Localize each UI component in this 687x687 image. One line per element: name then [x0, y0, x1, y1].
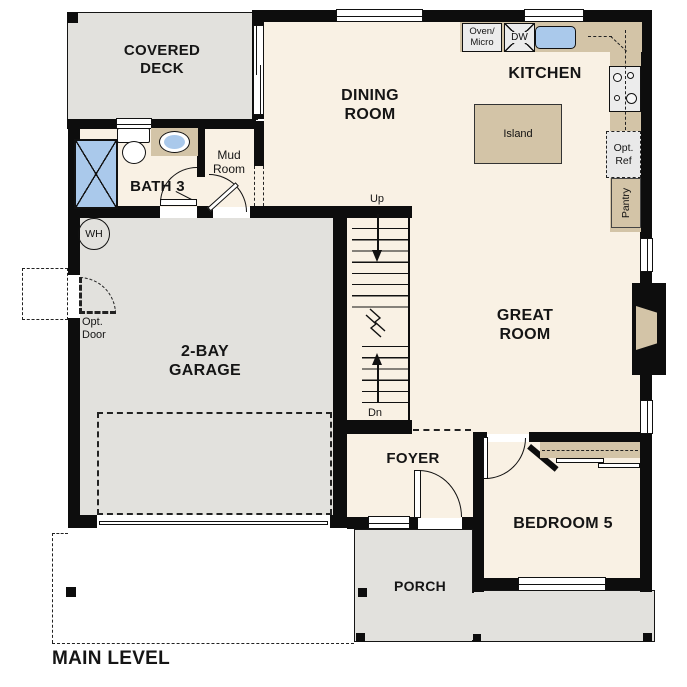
covered-deck-label: COVERED DECK: [92, 42, 232, 78]
wall-front-c: [462, 517, 473, 529]
mud-room-label: Mud Room: [200, 148, 258, 177]
closet-bypass-door: [556, 458, 604, 463]
driveway-dashed-left: [52, 533, 53, 643]
deck-sliding-door: [253, 25, 264, 115]
pantry-cabinet: Pantry: [611, 178, 641, 228]
garage-label: 2-BAY GARAGE: [145, 342, 265, 380]
water-heater-label: WH: [85, 228, 103, 240]
bath3-label: BATH 3: [110, 178, 205, 196]
dining-room-label: DINING ROOM: [315, 86, 425, 124]
upper-cabinet-dashed-line: [625, 30, 626, 130]
kitchen-label: KITCHEN: [490, 64, 600, 83]
cooktop-burner: [627, 72, 634, 79]
wall-garage-bottom-b: [330, 515, 347, 528]
porch-post: [643, 633, 652, 642]
shower: [74, 139, 118, 209]
stairs-lower-flight: [362, 336, 408, 406]
porch-area-side: [473, 590, 655, 642]
great-room-window-lower: [640, 400, 653, 434]
driveway-post: [66, 587, 76, 597]
stairs-upper-flight: [352, 218, 408, 314]
wall-garage-bottom-a: [68, 515, 97, 528]
stairs-up-arrow-shaft: [377, 214, 379, 250]
wall-bedroom-top-b: [529, 432, 645, 442]
stair-right-rail: [408, 212, 410, 420]
garage-door-panel: [99, 521, 328, 525]
pantry-label: Pantry: [620, 188, 632, 218]
wall-stairs-bottom: [340, 420, 412, 434]
cooktop-burner: [613, 73, 622, 82]
cooktop-burner: [626, 93, 637, 104]
water-heater: WH: [78, 218, 110, 250]
stairs-up-label: Up: [362, 193, 392, 206]
stairs-break-zigzag: [364, 308, 392, 338]
porch-seam-patch: [470, 593, 476, 640]
closet-bypass-door: [598, 463, 640, 468]
opt-ref: Opt. Ref: [606, 131, 641, 178]
bedroom5-label: BEDROOM 5: [493, 514, 633, 533]
stairs-dn-label: Dn: [360, 407, 390, 420]
porch-post: [356, 633, 365, 642]
wall-top: [252, 10, 652, 22]
porch-post: [358, 588, 367, 597]
wall-long-c: [250, 206, 412, 218]
driveway-dashed-top: [52, 533, 68, 534]
wall-right-4: [640, 434, 652, 592]
opt-door-label: Opt. Door: [82, 316, 124, 342]
kitchen-window: [524, 9, 584, 22]
opt-ref-label: Opt. Ref: [614, 142, 634, 166]
toilet-bowl: [122, 141, 146, 164]
plan-title: MAIN LEVEL: [52, 648, 232, 671]
foyer-label: FOYER: [375, 450, 451, 468]
foyer-sidelight-window: [368, 516, 410, 529]
dishwasher-label: DW: [510, 32, 529, 43]
wall-bedroom-bottom-b: [606, 578, 652, 590]
wall-left-lower: [68, 318, 80, 528]
fireplace-firebox: [636, 306, 657, 350]
great-room-window-upper: [640, 238, 653, 272]
dishwasher: DW: [504, 23, 535, 52]
driveway-dashed-bottom: [52, 643, 354, 644]
oven-micro: Oven/ Micro: [462, 23, 502, 52]
stairs-dn-arrow-shaft: [377, 365, 379, 403]
opt-door-landing: [22, 268, 68, 320]
bedroom5-window: [518, 577, 606, 591]
wall-front-a: [347, 517, 368, 529]
island-label: Island: [503, 128, 532, 140]
vanity-sink-basin: [164, 135, 185, 149]
oven-micro-label: Oven/ Micro: [469, 27, 494, 49]
closet-rod-dashed: [542, 450, 638, 451]
wall-front-b: [410, 517, 418, 529]
dining-window: [336, 9, 423, 22]
great-room-label: GREAT ROOM: [470, 306, 580, 344]
foyer-opening-dashed: [413, 429, 471, 431]
porch-post: [473, 634, 481, 642]
wall-bedroom-bottom-a: [473, 578, 518, 590]
garage-door-track-outline: [97, 412, 332, 515]
stairs-dn-arrow-head: [372, 353, 382, 365]
upper-cabinet-dashed-line: [588, 36, 612, 37]
cooktop-burner: [614, 95, 620, 101]
deck-post: [67, 12, 78, 23]
kitchen-sink: [535, 26, 576, 49]
wall-garage-right: [333, 218, 347, 528]
stairs-up-arrow-head: [372, 250, 382, 262]
floor-plan: Oven/ Micro DW Opt. Ref Pantry Island: [0, 0, 687, 687]
kitchen-island: Island: [474, 104, 562, 164]
porch-label: PORCH: [385, 578, 455, 595]
